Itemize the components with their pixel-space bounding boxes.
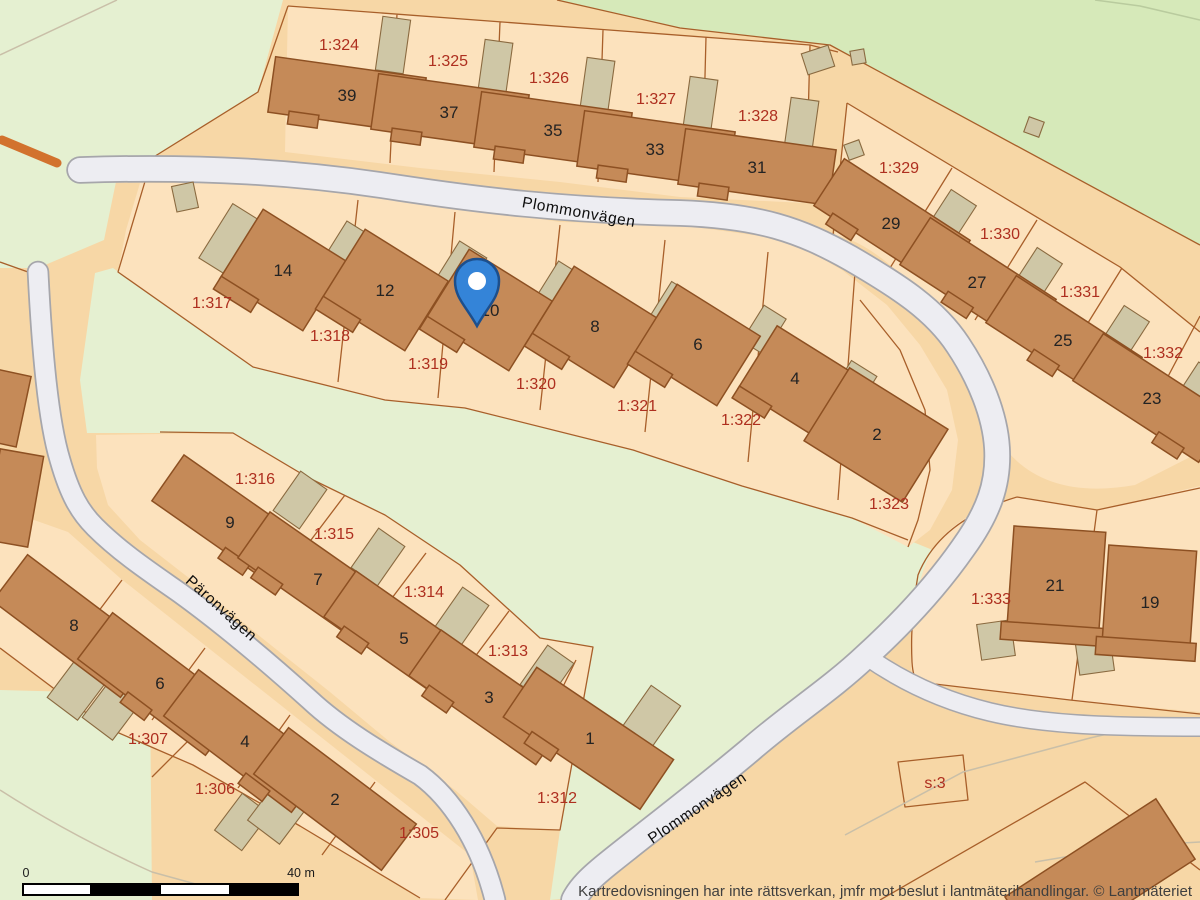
parcel-label: 1:314 [404,584,444,601]
building-label: 5 [399,629,408,648]
building-label: 23 [1143,389,1162,408]
map-viewport[interactable]: 1:324 1:325 1:326 1:327 1:328 1:329 1:33… [0,0,1200,900]
parcel-label: 1:320 [516,376,556,393]
parcel-label: 1:327 [636,91,676,108]
building-label: 25 [1054,331,1073,350]
parcel-label: 1:306 [195,781,235,798]
parcel-label: 1:312 [537,790,577,807]
parcel-label: 1:331 [1060,284,1100,301]
parcel-label: 1:329 [879,160,919,177]
building-label: 4 [790,369,799,388]
building-label: 14 [274,261,293,280]
parcel-label: 1:324 [319,37,359,54]
parcel-label: 1:313 [488,643,528,660]
parcel-label: 1:323 [869,496,909,513]
building-label: 35 [544,121,563,140]
building-label: 3 [484,688,493,707]
parcel-label: 1:319 [408,356,448,373]
building-label: 31 [748,158,767,177]
parcel-label: 1:330 [980,226,1020,243]
building-label: 33 [646,140,665,159]
parcel-label: 1:325 [428,53,468,70]
building-label: 39 [338,86,357,105]
pin-center-dot [468,272,486,290]
building-label: 4 [240,732,249,751]
building-label: 9 [225,513,234,532]
map-attribution: Kartredovisningen har inte rättsverkan, … [578,883,1193,900]
scale-end-label: 40 m [287,866,315,880]
building-label: 27 [968,273,987,292]
parcel-label: 1:318 [310,328,350,345]
scale-start-label: 0 [23,866,30,880]
parcel-label: 1:326 [529,70,569,87]
building-label: 12 [376,281,395,300]
building-label: 29 [882,214,901,233]
cadastral-map-canvas[interactable]: 1:324 1:325 1:326 1:327 1:328 1:329 1:33… [0,0,1200,900]
building-label: 7 [313,570,322,589]
building-label: 37 [440,103,459,122]
parcel-label: 1:315 [314,526,354,543]
building-label: 2 [330,790,339,809]
building-label: 21 [1046,576,1065,595]
parcel-label: 1:322 [721,412,761,429]
building-label: 8 [590,317,599,336]
parcel-label: 1:333 [971,591,1011,608]
parcel-label: 1:317 [192,295,232,312]
parcel-label: 1:328 [738,108,778,125]
building-label: 6 [693,335,702,354]
parcel-label: 1:321 [617,398,657,415]
building-label: 2 [872,425,881,444]
building-label: 19 [1141,593,1160,612]
parcel-label: s:3 [924,775,945,792]
parcel-label: 1:316 [235,471,275,488]
parcel-label: 1:332 [1143,345,1183,362]
building-label: 1 [585,729,594,748]
parcel-label: 1:307 [128,731,168,748]
building-label: 6 [155,674,164,693]
parcel-label: 1:305 [399,825,439,842]
building-label: 8 [69,616,78,635]
